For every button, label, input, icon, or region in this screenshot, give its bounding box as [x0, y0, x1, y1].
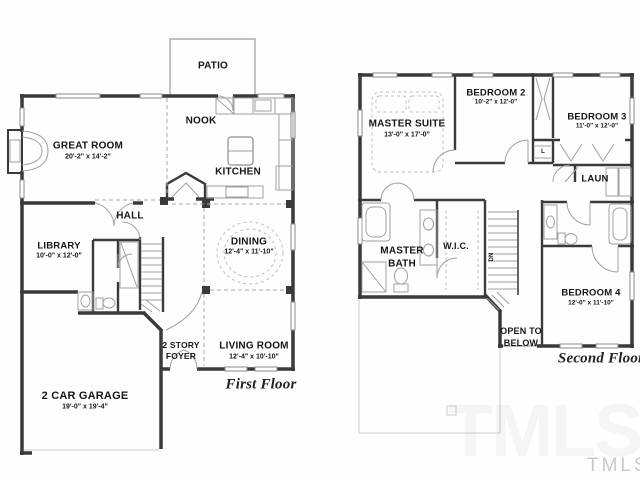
library-dims: 10'-0" x 12'-0" — [36, 253, 82, 260]
garage-label: 2 CAR GARAGE — [42, 390, 129, 402]
master-bath-label-line1: MASTER — [380, 246, 423, 257]
second-floor-doors — [381, 140, 618, 278]
first-floor-title: First Floor — [226, 377, 297, 394]
floor-plan-sheet: PATIO NOOK GREAT ROOM 20'-2" x 14'-2" KI… — [0, 0, 640, 480]
laundry-label: LAUN — [581, 174, 608, 185]
first-floor-partitions — [93, 173, 205, 313]
library-label: LIBRARY — [37, 241, 80, 252]
master-bath-label-line2: BATH — [388, 259, 416, 270]
dining-dims: 12'-4" x 11'-10" — [224, 249, 273, 256]
garage-dims: 19'-0" x 19'-4" — [62, 404, 108, 411]
first-floor-doors — [95, 96, 233, 369]
bedroom-2-label: BEDROOM 2 — [466, 88, 525, 99]
great-room-dims: 20'-2" x 14'-2" — [65, 154, 111, 161]
washer-dryer — [606, 168, 631, 196]
stairs-dn-label: DN — [489, 252, 495, 261]
great-room-label: GREAT ROOM — [53, 141, 123, 152]
column-posts — [160, 197, 294, 294]
stairs-up — [141, 244, 162, 312]
second-floor-title: Second Floor — [558, 351, 640, 368]
nook-label: NOOK — [186, 116, 217, 127]
bedroom-3-label: BEDROOM 3 — [567, 112, 626, 123]
first-floor-windows — [20, 94, 295, 371]
wic-label: W.I.C. — [443, 241, 469, 251]
pantry-door — [172, 183, 199, 197]
master-suite-dims: 13'-0" x 17'-0" — [384, 132, 430, 139]
linen-closet-label: L — [541, 149, 545, 155]
bedroom-3-dims: 11'-0" x 12'-0" — [576, 123, 618, 130]
bedroom-2-dims: 10'-2" x 12'-0" — [475, 99, 518, 106]
open-to-below-line2: BELOW — [504, 338, 539, 348]
dining-label: DINING — [231, 237, 267, 248]
living-room-label: LIVING ROOM — [219, 341, 288, 352]
tmls-watermark-small: TMLS — [587, 455, 640, 477]
foyer-label-line1: 2 STORY — [162, 340, 199, 350]
ceiling-break-lines — [95, 98, 286, 366]
hall-bath-fixtures — [544, 204, 631, 245]
master-suite-label: MASTER SUITE — [369, 119, 446, 130]
living-room-dims: 12'-4" x 10'-10" — [229, 354, 279, 361]
kitchen-label: KITCHEN — [215, 167, 261, 178]
fireplace — [8, 130, 48, 173]
powder-room-fixtures — [78, 292, 115, 310]
hall-label: HALL — [116, 211, 143, 222]
open-to-below-line1: OPEN TO — [500, 326, 542, 336]
bedroom-4-dims: 12'-0" x 11'-10" — [568, 300, 614, 307]
foyer-label-line2: FOYER — [166, 351, 196, 361]
patio-label: PATIO — [198, 61, 228, 72]
kitchen-counters — [207, 98, 293, 198]
bedroom-4-label: BEDROOM 4 — [561, 288, 620, 299]
hall-closet — [120, 242, 138, 288]
